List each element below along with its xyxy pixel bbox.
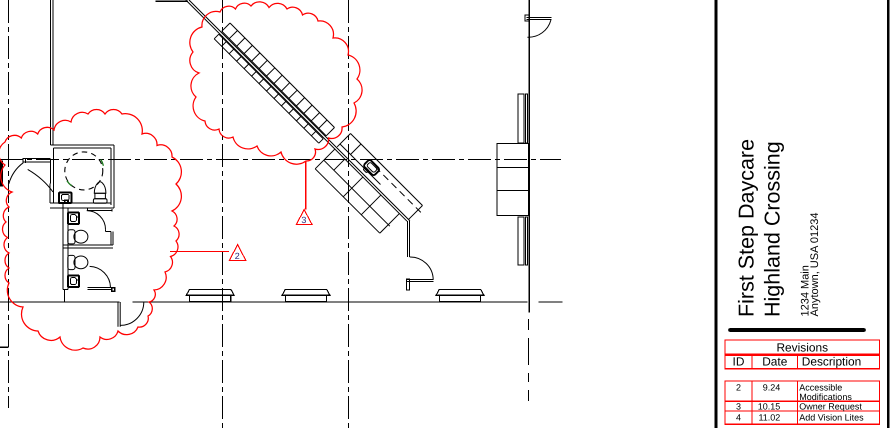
svg-text:10.15: 10.15: [758, 401, 781, 411]
svg-text:Revisions: Revisions: [776, 341, 828, 355]
svg-text:11.02: 11.02: [758, 412, 780, 422]
svg-text:9.24: 9.24: [763, 383, 781, 393]
svg-text:2: 2: [736, 383, 741, 393]
svg-text:Add Vision Lites: Add Vision Lites: [799, 412, 864, 422]
svg-text:Anytown, USA 01234: Anytown, USA 01234: [809, 213, 821, 317]
svg-text:2: 2: [235, 251, 240, 261]
svg-text:4: 4: [736, 412, 741, 422]
svg-text:Highland Crossing: Highland Crossing: [761, 141, 785, 317]
svg-text:Owner Request: Owner Request: [799, 401, 862, 411]
svg-text:Description: Description: [802, 354, 861, 368]
svg-text:Date: Date: [762, 354, 788, 368]
svg-text:3: 3: [301, 215, 306, 225]
svg-text:Accessible: Accessible: [799, 383, 842, 393]
svg-text:ID: ID: [733, 354, 745, 368]
svg-text:First Step Daycare: First Step Daycare: [735, 139, 759, 317]
svg-text:3: 3: [736, 401, 741, 411]
